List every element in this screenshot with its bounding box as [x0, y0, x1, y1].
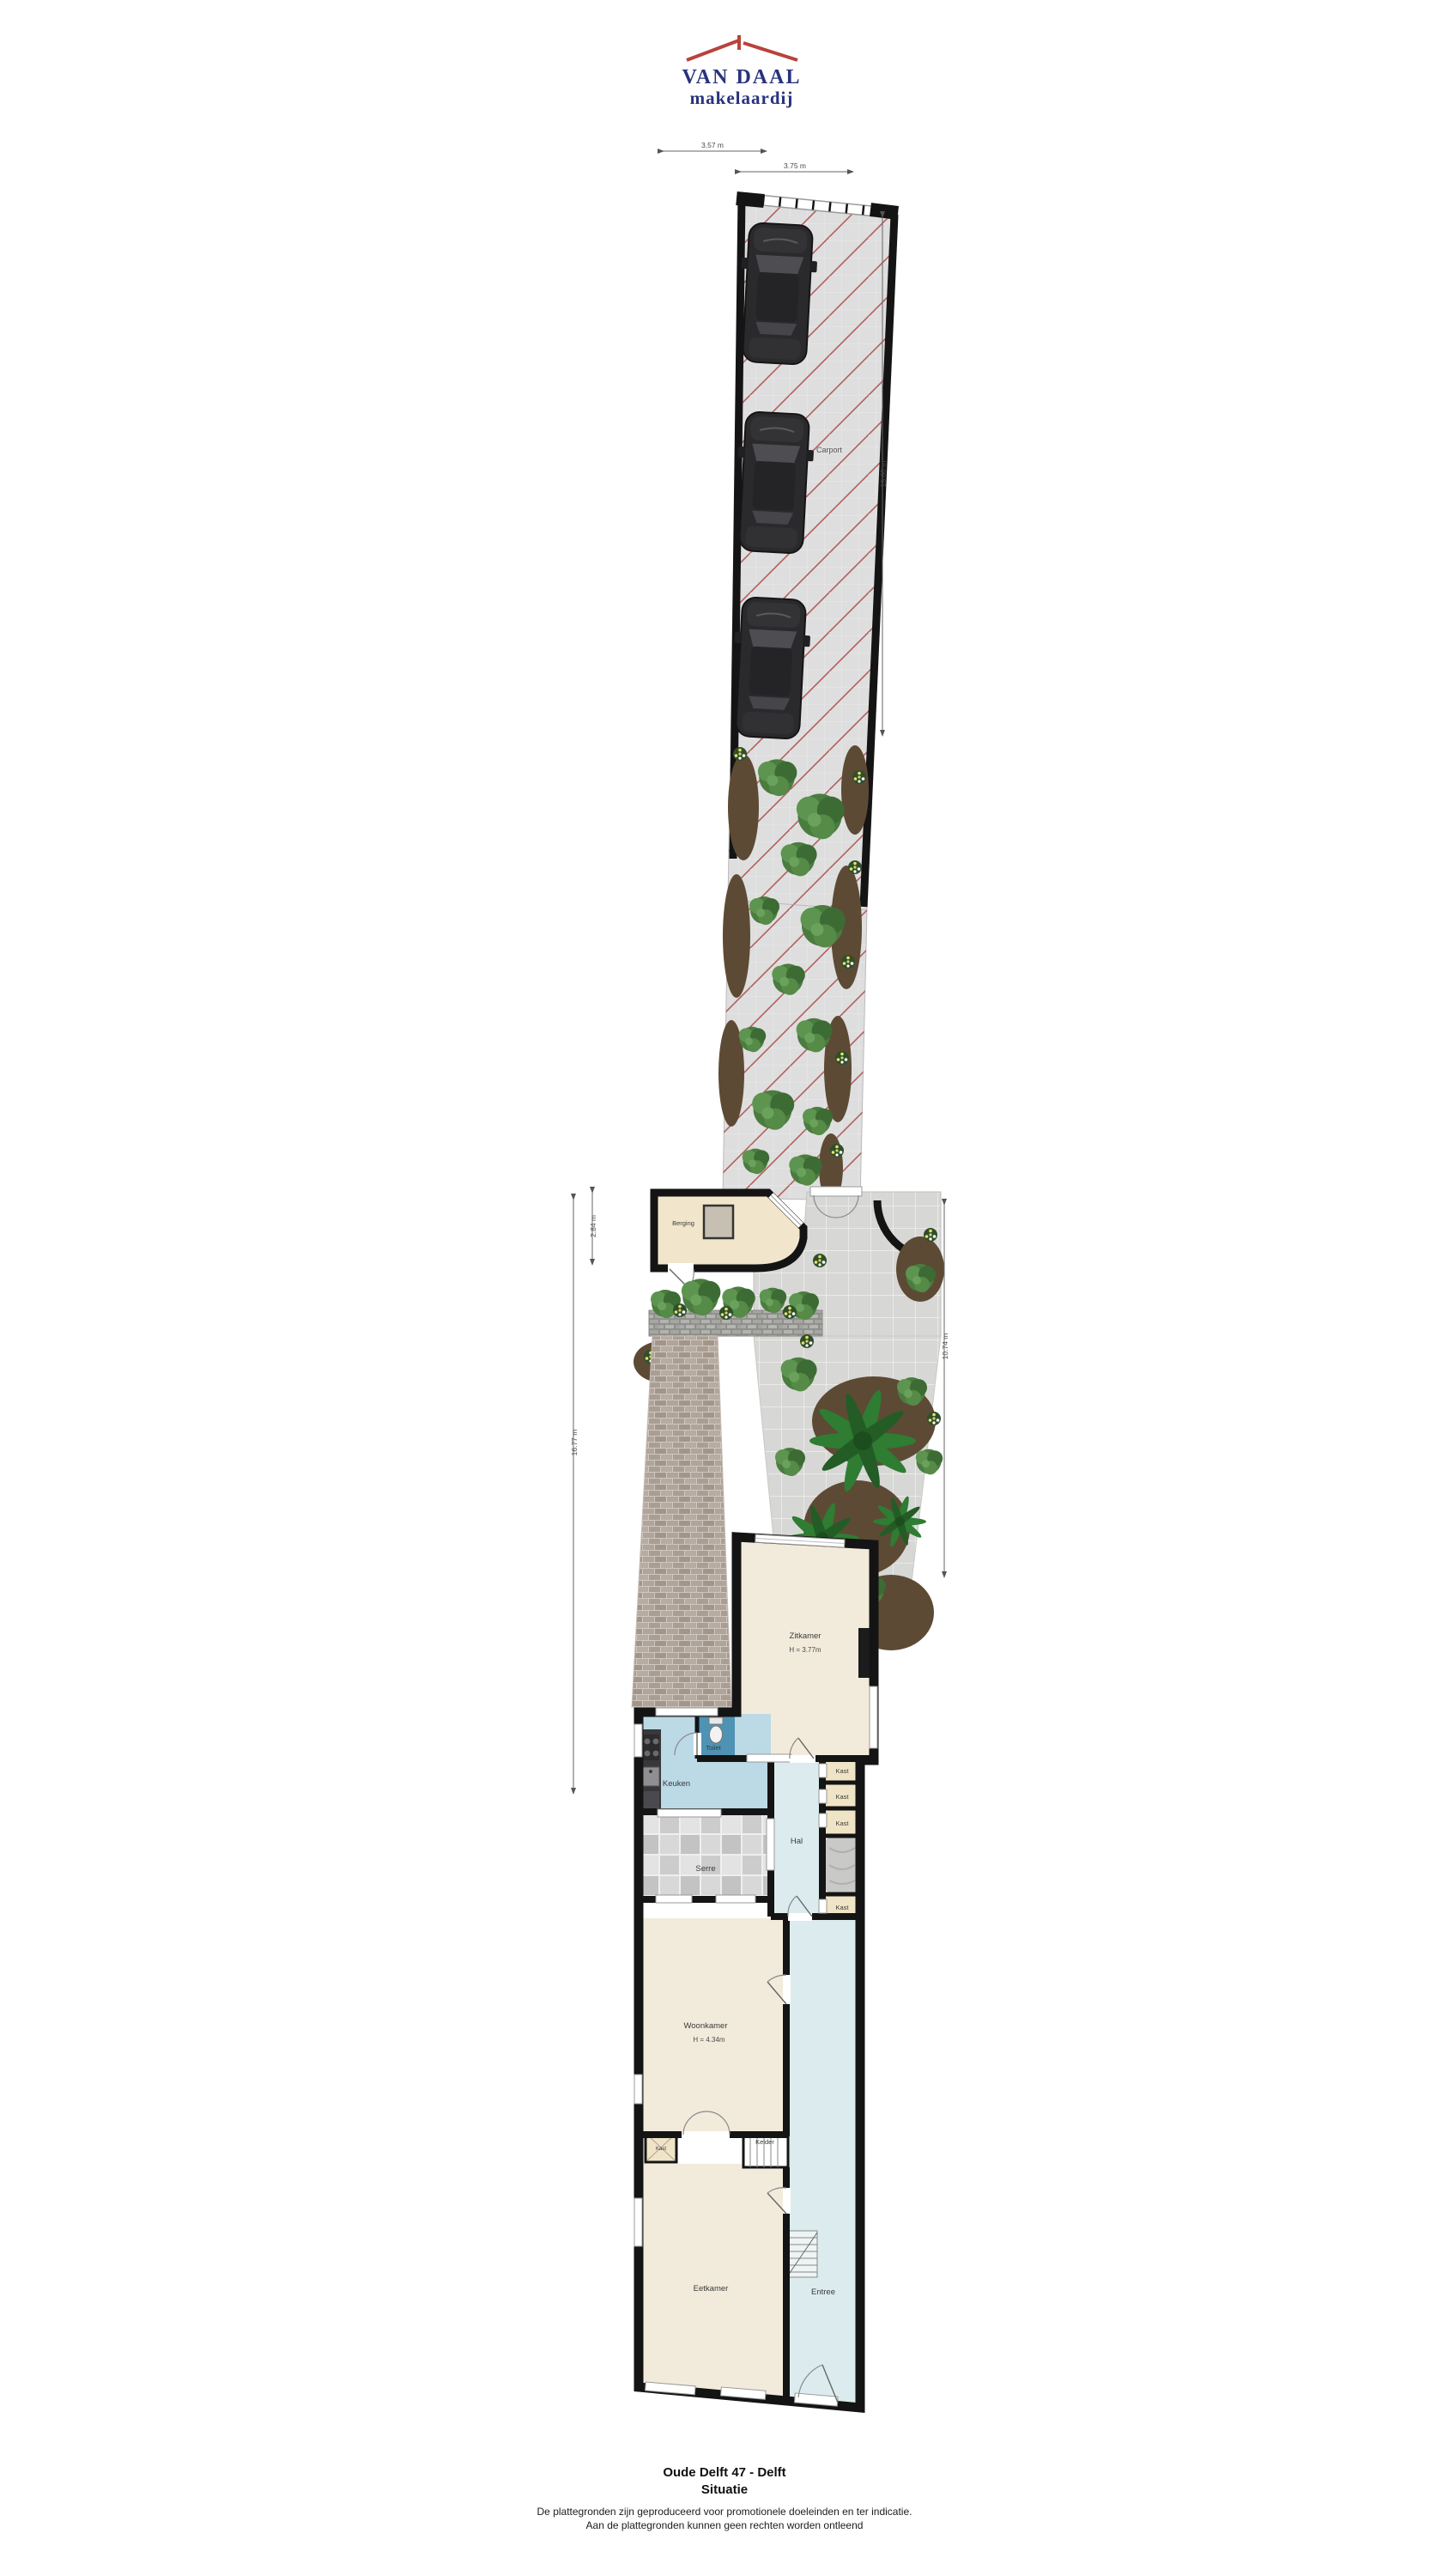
dim-berging-left: 2.84 m — [589, 1215, 597, 1237]
room-eetkamer — [639, 2164, 786, 2397]
flower-icon — [841, 955, 855, 969]
berging-label: Berging — [672, 1219, 694, 1227]
dim-top1: 3.57 m — [701, 141, 724, 149]
brand-logo: VAN DAAL makelaardij — [682, 35, 802, 108]
flower-icon — [924, 1228, 937, 1242]
flower-icon — [835, 1051, 849, 1065]
car-icon — [730, 597, 812, 739]
brick-path — [632, 1336, 731, 1707]
logo-roof-icon — [687, 35, 797, 60]
kelder-label: Kelder — [755, 2138, 774, 2146]
car-icon — [733, 411, 815, 554]
eetkamer-label: Eetkamer — [694, 2284, 729, 2293]
plan-title: Oude Delft 47 - Delft — [0, 2464, 1449, 2482]
car-icon — [737, 222, 819, 365]
flower-icon — [927, 1412, 941, 1425]
dim-garden-right: 10.74 m — [941, 1334, 949, 1360]
plan-subtitle: Situatie — [0, 2482, 1449, 2499]
kast-label-4: Kast — [835, 1904, 849, 1911]
skylight — [704, 1206, 733, 1238]
zitkamer-label: Zitkamer — [790, 1631, 822, 1641]
room-entree-corridor — [788, 1918, 860, 2406]
floorplan-page: VAN DAAL makelaardij Carport — [0, 0, 1449, 2576]
kast-label-5: Kast — [656, 2147, 666, 2152]
site-plan-canvas: VAN DAAL makelaardij Carport — [0, 0, 1449, 2576]
room-serre — [640, 1814, 771, 1899]
dim-garden-left: 16.77 m — [570, 1430, 579, 1456]
staircase — [788, 2231, 817, 2277]
toilet-fixture — [709, 1717, 723, 1743]
toilet-label: Toilet — [706, 1744, 721, 1752]
disclaimer-line1: De plattegronden zijn geproduceerd voor … — [0, 2505, 1449, 2518]
flower-icon — [719, 1306, 733, 1320]
kast-label-1: Kast — [835, 1767, 849, 1775]
flower-icon — [848, 860, 862, 874]
flower-icon — [813, 1254, 827, 1267]
zitkamer-height-label: H = 3.77m — [789, 1646, 821, 1654]
logo-title: VAN DAAL — [682, 66, 802, 88]
dim-carport-right: 15.60 m — [879, 461, 888, 488]
keuken-label: Keuken — [663, 1779, 690, 1789]
kast-label-2: Kast — [835, 1793, 849, 1801]
flower-icon — [783, 1305, 797, 1319]
logo-subtitle: makelaardij — [690, 88, 794, 108]
kitchen-counter — [640, 1729, 661, 1812]
entree-label: Entree — [811, 2287, 835, 2297]
hal-label: Hal — [791, 1837, 803, 1846]
flower-icon — [733, 747, 747, 761]
disclaimer-line2: Aan de plattegronden kunnen geen rechten… — [0, 2518, 1449, 2532]
carport-label: Carport — [816, 446, 843, 454]
footer: Oude Delft 47 - Delft Situatie De platte… — [0, 2464, 1449, 2532]
flower-icon — [852, 770, 866, 784]
flower-icon — [830, 1144, 844, 1157]
dim-top2: 3.75 m — [784, 161, 806, 170]
flower-icon — [800, 1334, 814, 1348]
woonkamer-label: Woonkamer — [683, 2021, 727, 2031]
kast-label-3: Kast — [835, 1820, 849, 1827]
flower-icon — [673, 1303, 687, 1317]
woonkamer-height-label: H = 4.34m — [693, 2036, 724, 2044]
serre-label: Serre — [695, 1864, 715, 1874]
